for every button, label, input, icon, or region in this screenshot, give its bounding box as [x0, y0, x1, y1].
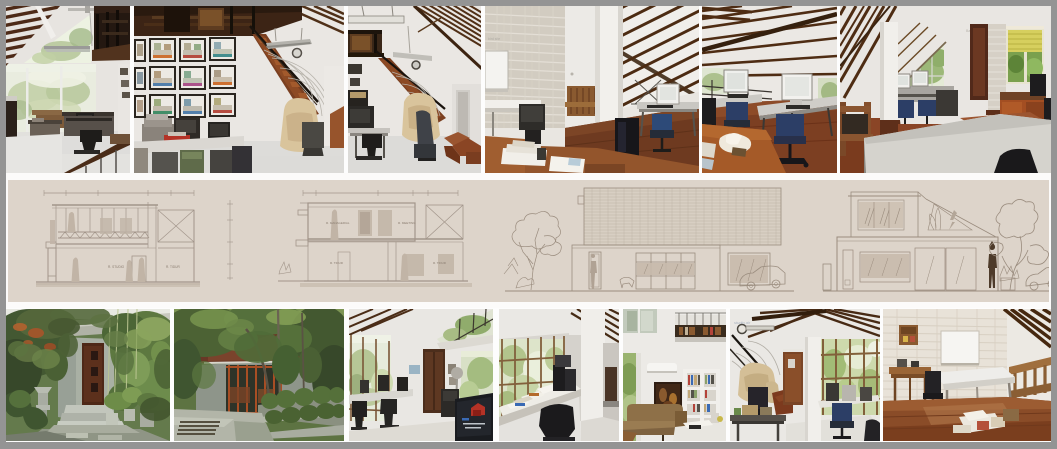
svg-text:R. MANAGERIAL: R. MANAGERIAL [326, 221, 350, 225]
svg-text:R. STUDIO: R. STUDIO [108, 265, 125, 269]
svg-text:R. MEETING: R. MEETING [398, 221, 416, 225]
svg-text:R. TIDUR: R. TIDUR [166, 265, 180, 269]
svg-text:R. TIDUR: R. TIDUR [330, 261, 344, 265]
svg-text:R. TIDUR: R. TIDUR [433, 261, 447, 265]
svg-text:bird site: bird site [488, 37, 500, 41]
